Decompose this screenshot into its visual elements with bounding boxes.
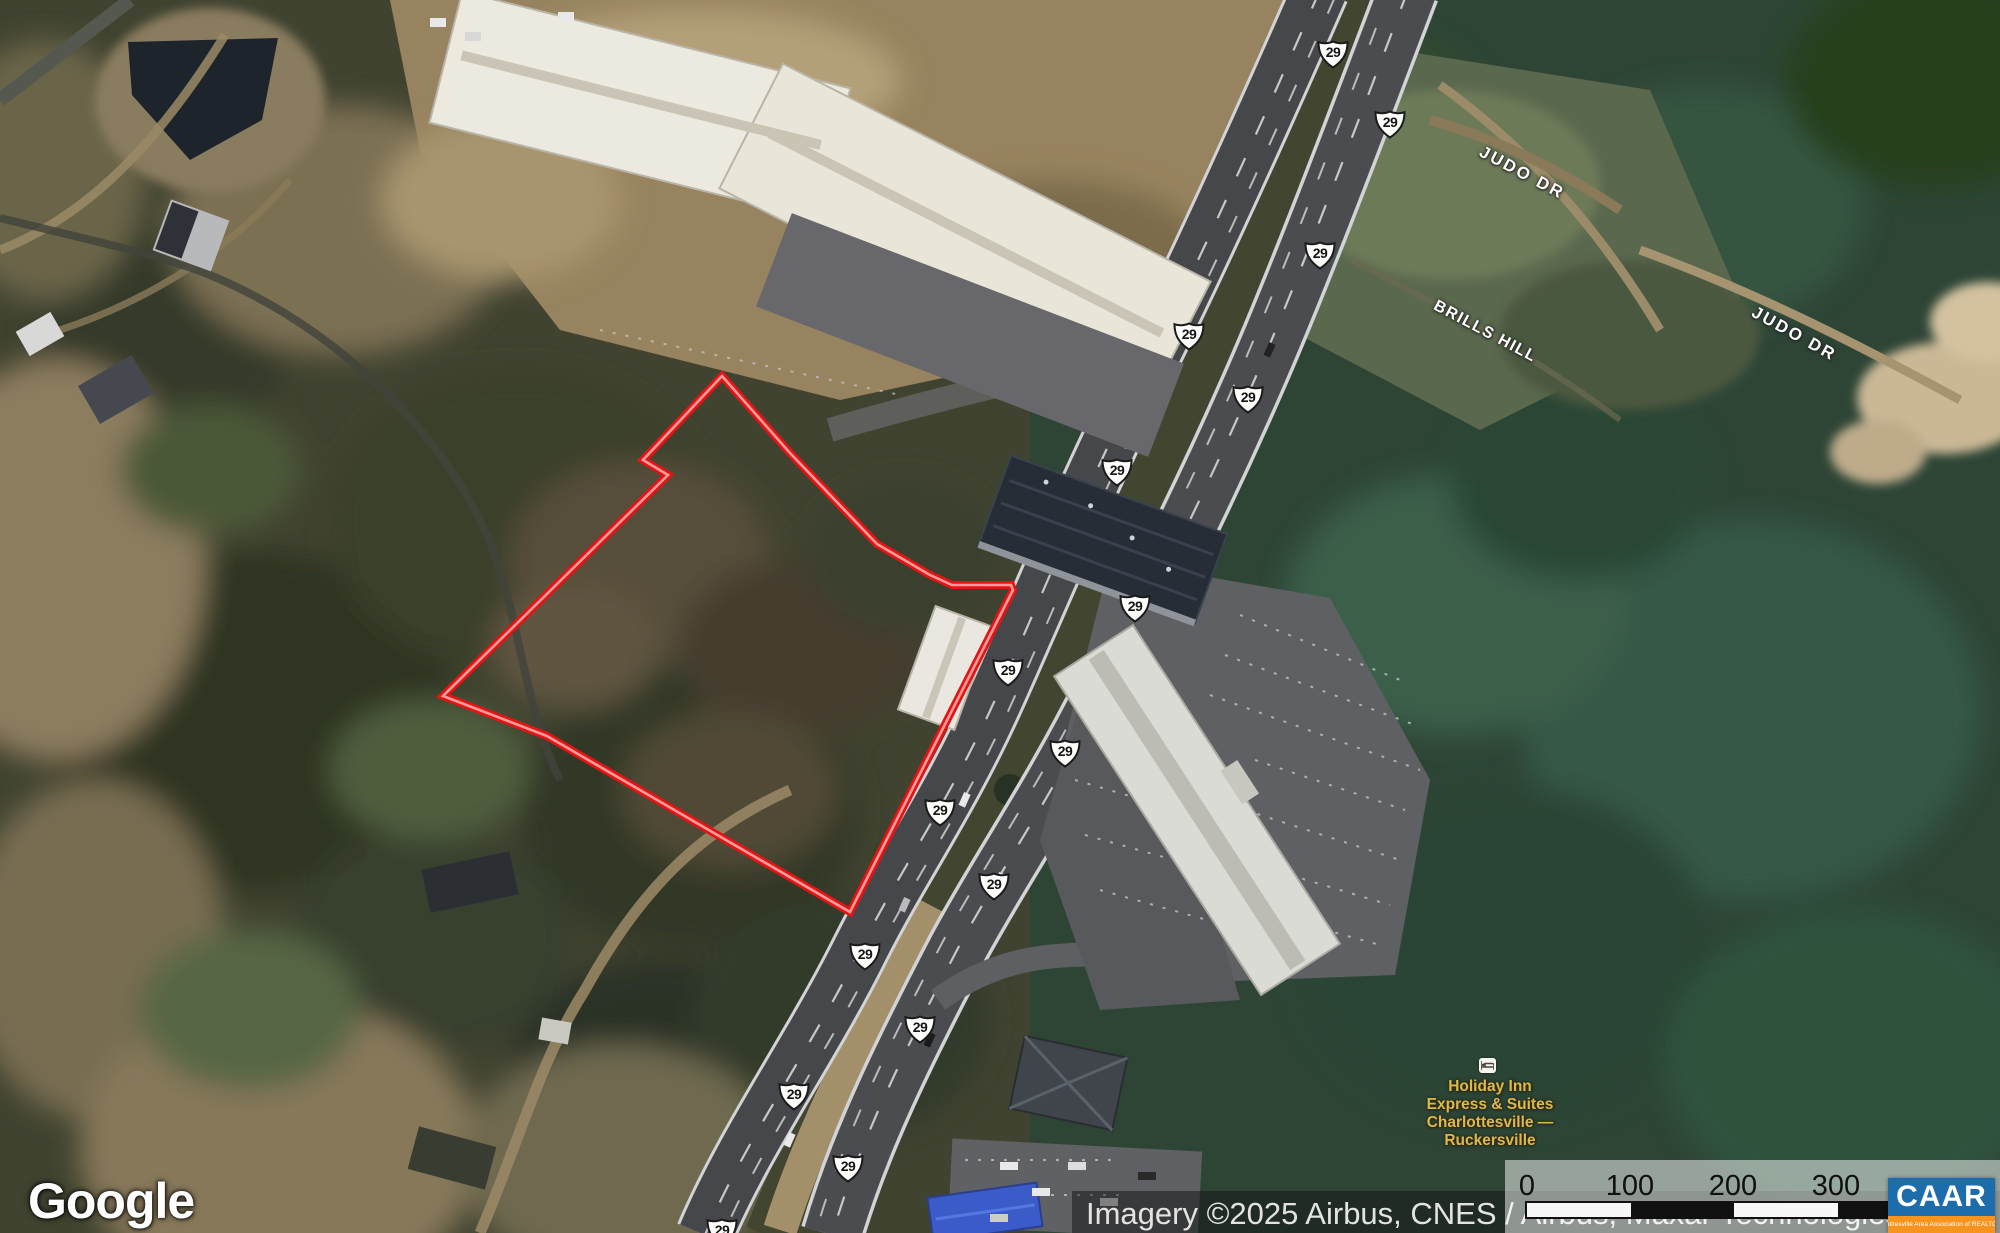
caar-logo-tagline-bar: Charlottesville Area Association of REAL… xyxy=(1888,1216,1995,1233)
map-viewport[interactable]: 29 29 29 29 29 29 29 29 29 29 29 29 29 2… xyxy=(0,0,2000,1233)
us-route-29-shield: 29 xyxy=(832,1154,864,1183)
caar-tagline: Charlottesville Area Association of REAL… xyxy=(1888,1221,1995,1228)
us-route-29-shield: 29 xyxy=(978,872,1010,901)
hotel-label-line: Express & Suites xyxy=(1385,1096,1595,1114)
route-number: 29 xyxy=(1317,44,1349,60)
scale-tick: 200 xyxy=(1693,1170,1773,1203)
scale-bar xyxy=(1525,1201,1943,1219)
route-number: 29 xyxy=(1304,245,1336,261)
caar-logo-top: CAAR xyxy=(1888,1178,1995,1216)
us-route-29-shield: 29 xyxy=(1173,322,1205,351)
hotel-bed-icon xyxy=(1479,1058,1496,1073)
us-route-29-shield: 29 xyxy=(778,1082,810,1111)
caar-logo: CAAR Charlottesville Area Association of… xyxy=(1888,1178,1995,1233)
hotel-label-line: Charlottesville — xyxy=(1385,1114,1595,1132)
satellite-imagery xyxy=(0,0,2000,1233)
us-route-29-shield: 29 xyxy=(992,658,1024,687)
caar-acronym: CAAR xyxy=(1896,1180,1987,1214)
us-route-29-shield: 29 xyxy=(1317,40,1349,69)
us-route-29-shield: 29 xyxy=(849,942,881,971)
scale-tick: 300 xyxy=(1796,1170,1876,1203)
route-number: 29 xyxy=(1374,114,1406,130)
hotel-label: Holiday Inn Express & Suites Charlottesv… xyxy=(1385,1078,1595,1150)
hotel-label-line: Ruckersville xyxy=(1385,1132,1595,1150)
scale-segment xyxy=(1734,1203,1838,1217)
scale-tick: 100 xyxy=(1590,1170,1670,1203)
route-number: 29 xyxy=(778,1086,810,1102)
us-route-29-shield: 29 xyxy=(924,798,956,827)
us-route-29-shield: 29 xyxy=(1119,594,1151,623)
us-route-29-shield: 29 xyxy=(1101,458,1133,487)
scale-tick: 0 xyxy=(1487,1170,1567,1203)
route-number: 29 xyxy=(706,1222,738,1233)
us-route-29-shield: 29 xyxy=(1304,241,1336,270)
scale-segment xyxy=(1527,1203,1631,1217)
route-number: 29 xyxy=(904,1019,936,1035)
route-number: 29 xyxy=(832,1158,864,1174)
google-watermark[interactable]: Google xyxy=(28,1172,194,1230)
route-number: 29 xyxy=(1101,462,1133,478)
us-route-29-shield: 29 xyxy=(706,1218,738,1233)
route-number: 29 xyxy=(849,946,881,962)
route-number: 29 xyxy=(1232,389,1264,405)
route-number: 29 xyxy=(1049,743,1081,759)
us-route-29-shield: 29 xyxy=(1049,739,1081,768)
route-number: 29 xyxy=(992,662,1024,678)
route-number: 29 xyxy=(924,802,956,818)
us-route-29-shield: 29 xyxy=(1232,385,1264,414)
route-number: 29 xyxy=(1173,326,1205,342)
us-route-29-shield: 29 xyxy=(904,1015,936,1044)
route-number: 29 xyxy=(978,876,1010,892)
scale-segment xyxy=(1631,1203,1735,1217)
us-route-29-shield: 29 xyxy=(1374,110,1406,139)
route-number: 29 xyxy=(1119,598,1151,614)
hotel-label-line: Holiday Inn xyxy=(1385,1078,1595,1096)
